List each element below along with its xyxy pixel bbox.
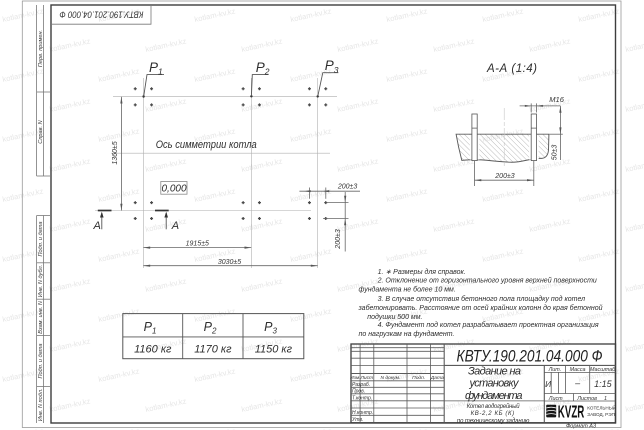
svg-text:Котел водогрейный: Котел водогрейный [467, 403, 521, 410]
svg-text:KVZR: KVZR [558, 401, 585, 421]
svg-text:КВ-2,2 КБ (К): КВ-2,2 КБ (К) [471, 411, 515, 417]
svg-text:Масштаб: Масштаб [590, 367, 616, 373]
svg-text:1:15: 1:15 [594, 379, 613, 389]
svg-text:И: И [545, 379, 552, 389]
svg-text:ЗАВОД, РЭП: ЗАВОД, РЭП [587, 412, 615, 417]
svg-text:Т.контр.: Т.контр. [352, 396, 372, 402]
svg-text:КВТУ.190.201.04.000 Ф: КВТУ.190.201.04.000 Ф [59, 9, 143, 20]
svg-text:1915±5: 1915±5 [186, 241, 209, 248]
svg-text:3030±5: 3030±5 [218, 259, 241, 266]
svg-text:Формат А3: Формат А3 [566, 423, 597, 429]
svg-text:1160 кг: 1160 кг [134, 344, 172, 356]
svg-text:А: А [93, 220, 101, 232]
svg-text:Разраб.: Разраб. [352, 382, 370, 388]
svg-text:по техническому заданию: по техническому заданию [457, 418, 530, 424]
svg-text:Инв. N подл.: Инв. N подл. [38, 388, 44, 421]
svg-text:КОТЕЛЬНЫЙ: КОТЕЛЬНЫЙ [587, 403, 616, 410]
svg-text:4. Фундамент под котел разраба: 4. Фундамент под котел разрабатывает про… [378, 321, 599, 329]
svg-text:Справ. N: Справ. N [38, 119, 44, 143]
svg-text:Дата: Дата [430, 375, 444, 381]
svg-text:200±3: 200±3 [335, 229, 342, 250]
svg-text:Изм.: Изм. [350, 375, 360, 381]
svg-text:2. Отклонение от горизонтально: 2. Отклонение от горизонтального уровня … [377, 277, 597, 285]
svg-text:фундамента не более 10 мм.: фундамента не более 10 мм. [359, 285, 456, 293]
svg-text:Лит.: Лит. [548, 367, 562, 373]
svg-text:Перв. примен.: Перв. примен. [38, 30, 44, 67]
svg-text:Взам. инв. N: Взам. инв. N [38, 300, 44, 334]
svg-text:1. ∗ Размеры для справок.: 1. ∗ Размеры для справок. [378, 268, 466, 276]
svg-text:Ось симметрии котла: Ось симметрии котла [156, 139, 257, 151]
svg-text:фундамента: фундамента [465, 390, 523, 402]
svg-text:Лист: Лист [360, 375, 374, 381]
svg-text:200±3: 200±3 [494, 173, 515, 180]
svg-text:Подп. и дата: Подп. и дата [38, 343, 44, 378]
svg-text:0,000: 0,000 [161, 184, 186, 195]
svg-text:по нагрузкам на фундамент.: по нагрузкам на фундамент. [359, 330, 455, 338]
svg-text:А-А (1:4): А-А (1:4) [486, 63, 538, 75]
svg-text:Утв.: Утв. [352, 417, 363, 423]
svg-text:А: А [171, 220, 179, 232]
svg-text:забетонировать. Расстояние от: забетонировать. Расстояние от осей крайн… [358, 304, 603, 312]
svg-text:50±3: 50±3 [551, 145, 558, 161]
svg-text:Н.контр.: Н.контр. [352, 410, 373, 416]
svg-text:подушки 500 мм.: подушки 500 мм. [367, 313, 422, 321]
svg-text:Инв. N дубл.: Инв. N дубл. [38, 265, 44, 297]
svg-text:3. В случае отсутствия бетонно: 3. В случае отсутствия бетонного пола пл… [378, 295, 586, 303]
svg-text:1170 кг: 1170 кг [194, 344, 232, 356]
svg-text:1360±5: 1360±5 [112, 141, 119, 164]
svg-text:200±3: 200±3 [337, 184, 358, 191]
svg-text:Подп.: Подп. [412, 375, 425, 381]
svg-text:М16: М16 [549, 95, 564, 104]
svg-text:N докум.: N докум. [381, 375, 401, 381]
svg-text:Пров.: Пров. [352, 389, 365, 395]
svg-text:установку: установку [469, 378, 521, 390]
svg-text:Подп. и дата: Подп. и дата [38, 221, 44, 256]
svg-text:КВТУ.190.201.04.000 Ф: КВТУ.190.201.04.000 Ф [457, 347, 603, 365]
svg-text:1: 1 [604, 396, 607, 402]
svg-text:Масса: Масса [570, 367, 586, 373]
svg-text:Задание на: Задание на [468, 366, 521, 378]
svg-text:1150 кг: 1150 кг [255, 344, 293, 356]
svg-text:–: – [574, 378, 581, 388]
